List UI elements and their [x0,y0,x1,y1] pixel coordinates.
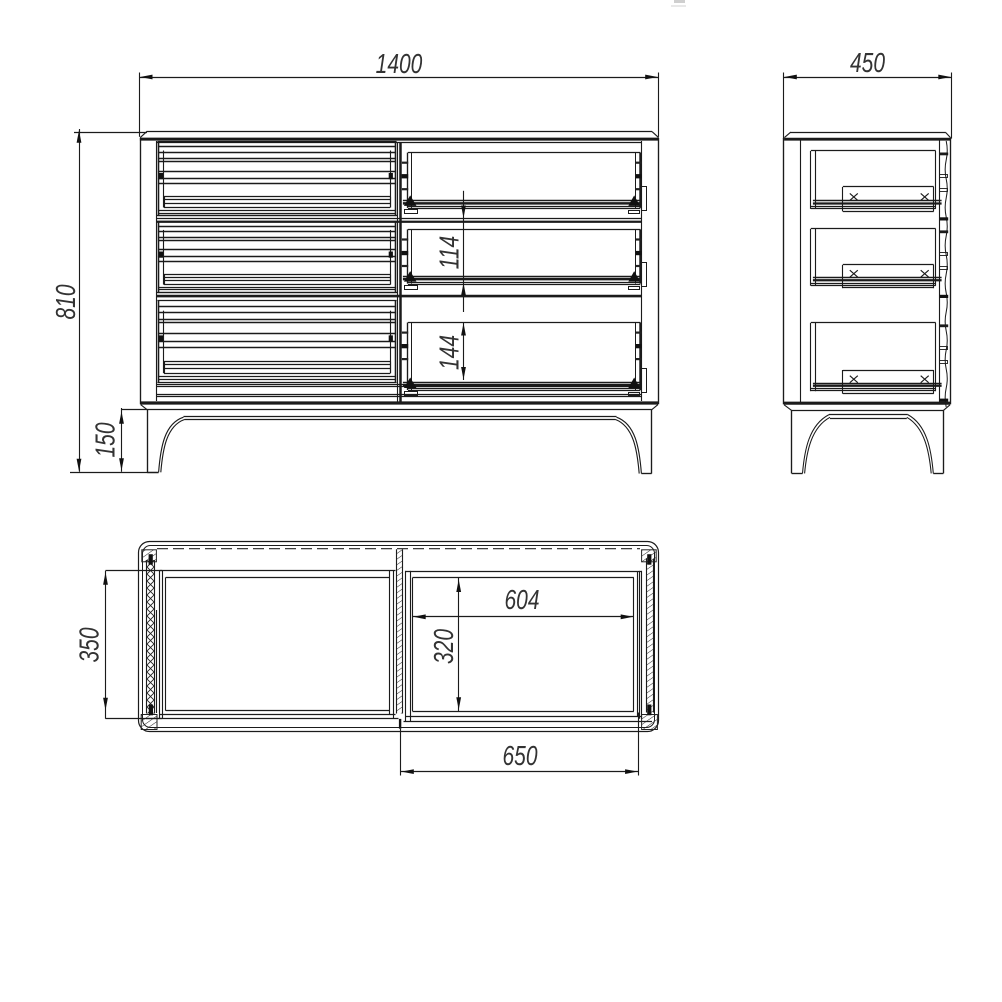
svg-text:650: 650 [502,741,537,772]
svg-text:450: 450 [850,48,885,79]
svg-text:1400: 1400 [376,49,423,80]
svg-text:144: 144 [435,335,466,370]
svg-text:114: 114 [435,236,466,269]
svg-text:150: 150 [91,422,122,457]
svg-text:350: 350 [75,627,106,662]
svg-text:320: 320 [429,629,460,664]
svg-text:604: 604 [504,585,539,616]
svg-text:810: 810 [51,284,82,319]
